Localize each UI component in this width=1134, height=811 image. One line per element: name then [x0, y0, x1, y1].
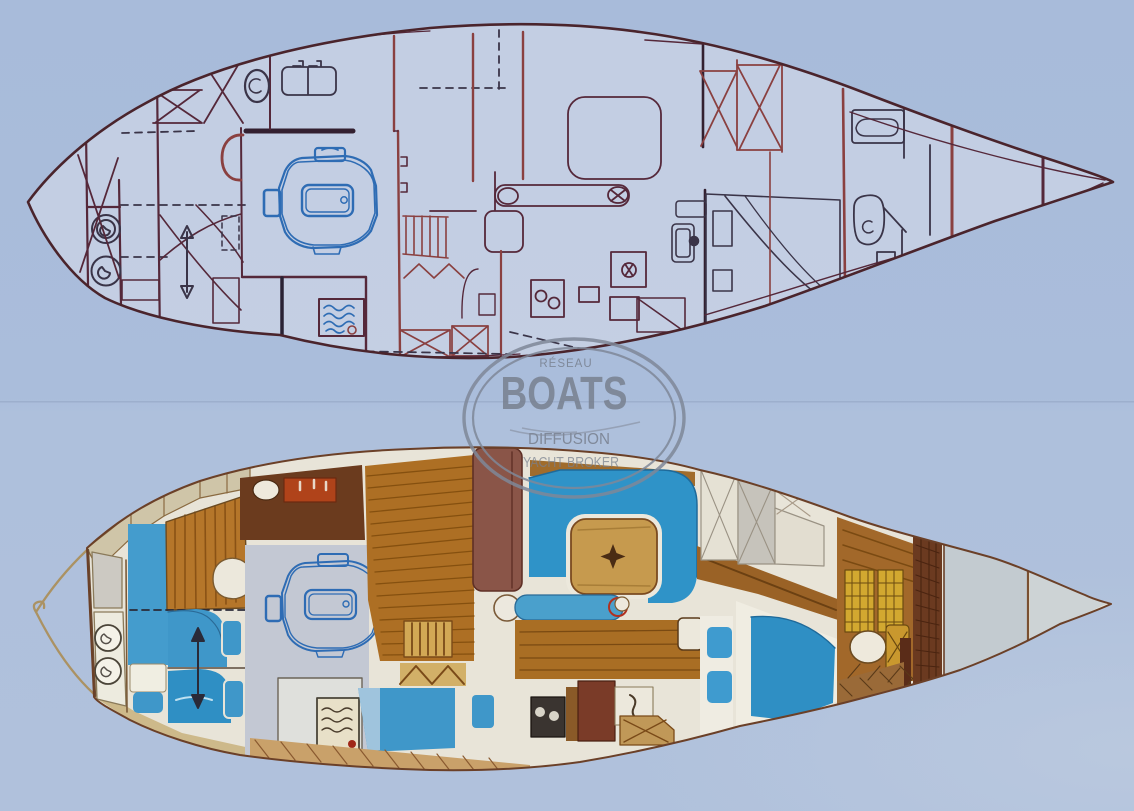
- svg-text:DIFFUSION: DIFFUSION: [528, 431, 610, 448]
- svg-text:YACHT BROKER: YACHT BROKER: [523, 455, 619, 471]
- svg-text:BOATS: BOATS: [501, 367, 628, 419]
